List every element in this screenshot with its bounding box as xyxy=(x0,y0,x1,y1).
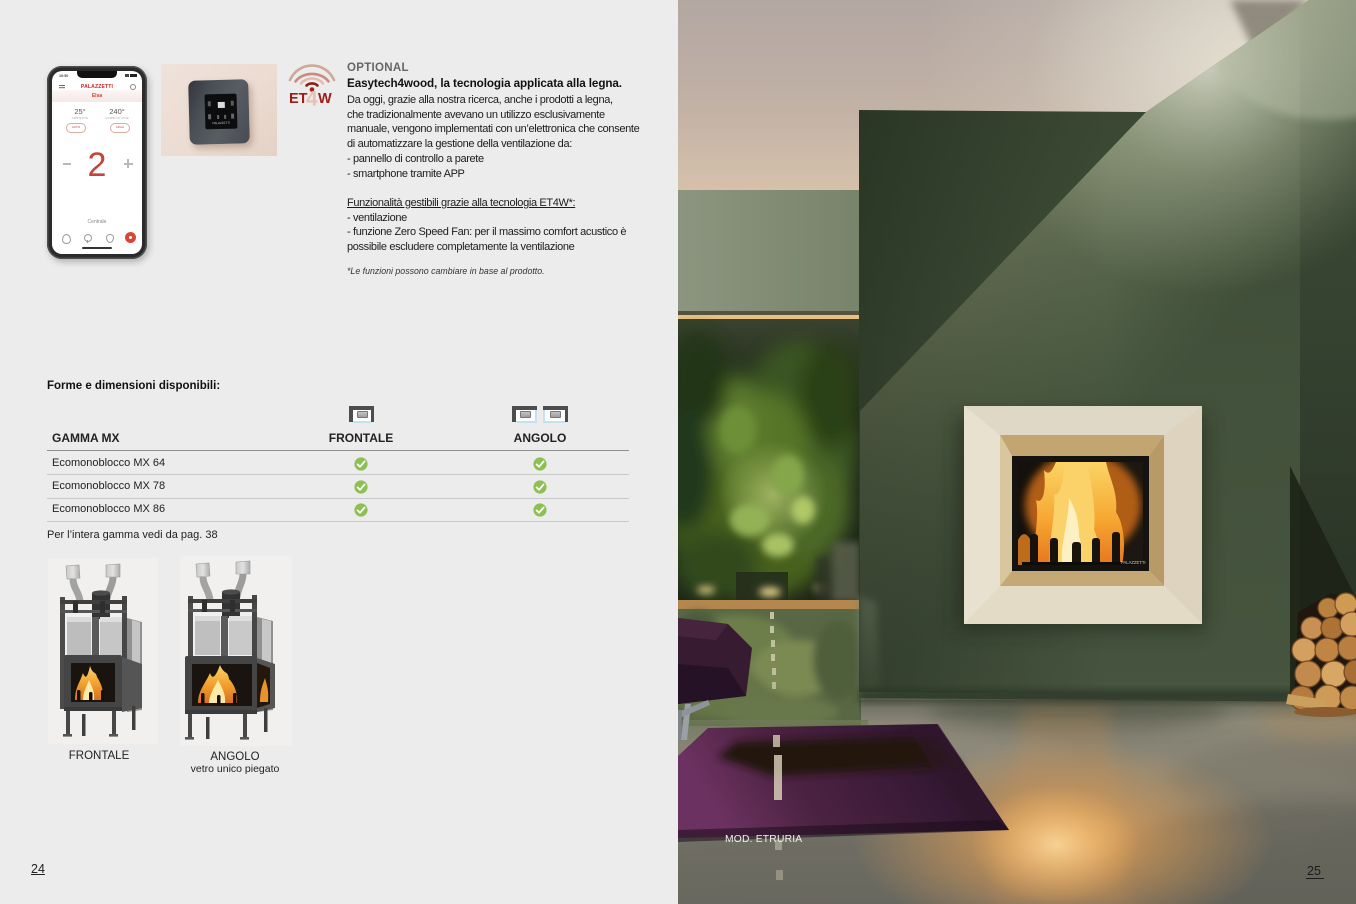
svg-text:ET: ET xyxy=(289,91,308,107)
svg-text:MOD. ETRURIA: MOD. ETRURIA xyxy=(725,834,802,845)
svg-text:4: 4 xyxy=(306,88,318,111)
svg-text:W: W xyxy=(318,91,332,107)
svg-text:PALAZZETTI: PALAZZETTI xyxy=(1121,560,1146,565)
svg-text:25: 25 xyxy=(1307,864,1321,878)
